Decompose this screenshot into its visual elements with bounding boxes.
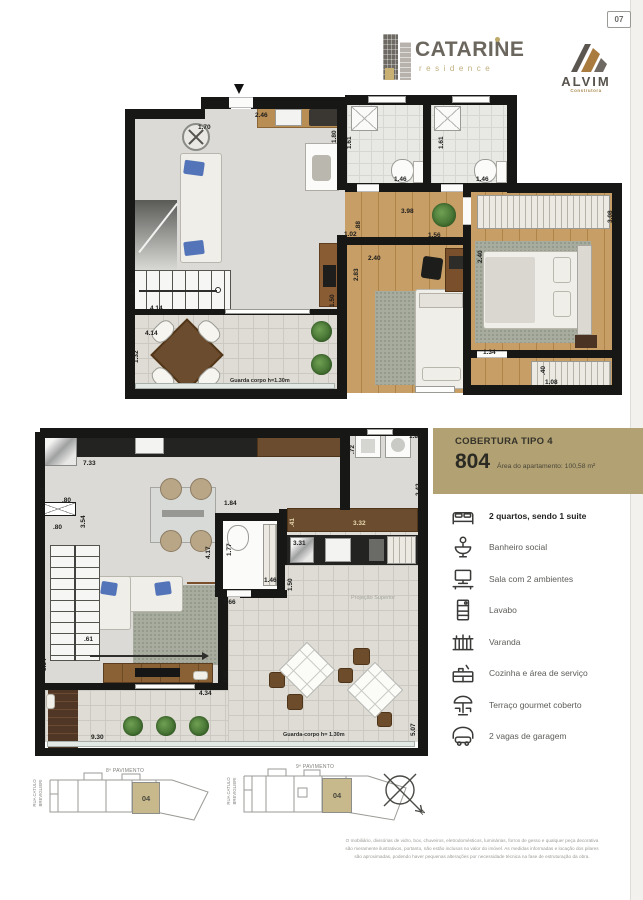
feature-item: Banheiro social <box>450 532 628 564</box>
dimension-label: .80 <box>62 497 71 504</box>
builder-name: ALVIM <box>547 74 625 89</box>
guardrail-glass <box>47 741 415 747</box>
door-gap <box>463 197 471 225</box>
bed-headboard <box>577 245 592 335</box>
dimension-label: 2.40 <box>477 250 484 263</box>
feature-label: 2 quartos, sendo 1 suite <box>489 511 586 521</box>
disclaimer-line: O mobiliário, divisórias de vidro, box, … <box>318 837 626 845</box>
floor-label: 8º PAVIMENTO <box>106 768 144 774</box>
chair <box>312 155 331 181</box>
stair-direction-line <box>90 655 202 657</box>
brand-accent-dot <box>495 37 500 42</box>
feature-label: Cozinha e área de serviço <box>489 668 588 678</box>
fridge <box>43 436 77 466</box>
bath-cabinet <box>496 161 507 183</box>
dimension-label: 3.98 <box>401 208 414 215</box>
street-label: RUA CATULO BREVIGLIERI <box>32 766 43 820</box>
sofa-pillow <box>100 581 118 596</box>
door-gap <box>441 184 463 192</box>
door-gap <box>357 184 379 192</box>
washing-machine-drum <box>391 438 405 452</box>
dimension-label: 2.42 <box>415 483 422 496</box>
building-icon-accent <box>385 68 394 80</box>
bedroom2-rug <box>375 291 417 385</box>
entry-arrow-icon <box>234 84 244 94</box>
dimension-label: 3.31 <box>293 540 306 547</box>
door-gap <box>227 590 251 597</box>
dimension-label: 1.70 <box>198 124 211 131</box>
upper-floor-plan: 2.461.701.801.611.611.461.463.98.881.021… <box>125 95 622 400</box>
dimension-label: .72 <box>349 445 356 454</box>
dimension-label: 3.32 <box>353 520 366 527</box>
dimension-label: 2.46 <box>255 112 268 119</box>
feature-list: 2 quartos, sendo 1 suiteBanheiro socialS… <box>450 500 628 752</box>
unit-number: 804 <box>455 450 490 474</box>
terrace-seat <box>338 668 353 683</box>
bed-blanket <box>485 257 535 323</box>
kitchen-icon <box>450 660 476 686</box>
dimension-label: 4.14 <box>150 305 163 312</box>
sofa-pillow <box>183 240 205 256</box>
dimension-label: 1.66 <box>223 599 236 606</box>
dimension-label: 1.84 <box>224 500 237 507</box>
kitchen-sink <box>275 109 302 126</box>
service-door <box>367 429 393 435</box>
feature-item: Varanda <box>450 626 628 658</box>
dimension-label: 4.17 <box>205 546 212 559</box>
floor-plan-sheet: 07 CATARINE residence ALVIM Construtora <box>0 0 643 900</box>
window <box>452 96 490 103</box>
feature-item: Lavabo <box>450 595 628 627</box>
plant <box>432 203 456 227</box>
feature-item: Terraço gourmet coberto <box>450 689 628 721</box>
dimension-label: .41 <box>289 518 296 527</box>
dimension-label: 2.25 <box>223 670 230 683</box>
bed-pillow <box>553 291 571 317</box>
dimension-label: 1.61 <box>346 136 353 149</box>
unit-area: Área do apartamento: 100,58 m² <box>497 463 595 470</box>
dimension-label: Guarda corpo h=1.30m <box>230 378 290 384</box>
shaft-marker <box>40 502 76 516</box>
gourmet-sink <box>325 538 351 562</box>
unit-info-panel: COBERTURA TIPO 4 804 Área do apartamento… <box>433 428 643 494</box>
terrace-seat <box>287 694 303 710</box>
dimension-label: 1.80 <box>331 130 338 143</box>
garage-icon <box>450 723 476 749</box>
sink-icon <box>450 534 476 560</box>
dimension-label: 3.86 <box>129 282 136 295</box>
dimension-label: Projeção Superior <box>351 595 395 601</box>
dimension-label: 4.14 <box>145 330 158 337</box>
bed-bench <box>422 367 461 381</box>
brand-name: CATARINE <box>415 38 524 62</box>
dimension-label: 2.80 <box>193 671 208 680</box>
unit-highlight: 04 <box>322 778 352 813</box>
nightstand <box>575 335 597 348</box>
toilet-icon <box>450 597 476 623</box>
dimension-label: 1.46 <box>476 176 489 183</box>
dimension-label: 1.02 <box>344 231 357 238</box>
brand-subtitle: residence <box>419 64 494 73</box>
unit-type-title: COBERTURA TIPO 4 <box>455 436 643 447</box>
alvim-mark-icon <box>547 38 625 74</box>
dimension-label: 1.61 <box>438 136 445 149</box>
dimension-label: 1.08 <box>545 379 558 386</box>
shower-box <box>434 106 461 131</box>
table-runner <box>162 510 204 517</box>
dining-chair <box>160 530 182 552</box>
wardrobe <box>477 195 610 229</box>
dimension-label: 1.34 <box>483 349 496 356</box>
dimension-label: 1.82 <box>39 487 46 500</box>
legal-disclaimer: O mobiliário, divisórias de vidro, box, … <box>318 837 626 860</box>
plant <box>123 716 143 736</box>
unit-highlight: 04 <box>132 782 160 814</box>
plant <box>156 716 176 736</box>
dimension-label: 2.83 <box>353 268 360 281</box>
dimension-label: 1.32 <box>46 694 55 709</box>
dimension-label: 4.34 <box>199 690 212 697</box>
alvim-logo: ALVIM Construtora <box>547 38 625 98</box>
plant <box>311 354 332 375</box>
feature-label: Varanda <box>489 637 521 647</box>
dimension-label: 7.33 <box>83 460 96 467</box>
page-number-badge: 07 <box>607 11 631 28</box>
dimension-label: 1.50 <box>287 578 294 591</box>
disclaimer-line: são aproximadas, podendo haver pequenas … <box>318 853 626 861</box>
dimension-label: .40 <box>540 366 547 375</box>
terrace-seat <box>377 712 392 727</box>
dimension-label: 3.08 <box>607 210 614 223</box>
catarine-logo: CATARINE residence <box>383 28 518 90</box>
feature-label: Sala com 2 ambientes <box>489 574 573 584</box>
feature-item: 2 quartos, sendo 1 suite <box>450 500 628 532</box>
window <box>415 386 455 393</box>
decor-object <box>323 265 336 287</box>
desk-chair <box>421 256 444 281</box>
disclaimer-line: são meramente ilustrativos, portanto, nã… <box>318 845 626 853</box>
sliding-door <box>225 309 310 314</box>
sliding-door <box>135 684 195 689</box>
feature-item: Sala com 2 ambientes <box>450 563 628 595</box>
stair-direction-line <box>139 290 217 292</box>
balcony-icon <box>450 629 476 655</box>
plant <box>189 716 209 736</box>
umbrella-icon <box>450 692 476 718</box>
shutter-panel <box>387 536 416 564</box>
dimension-label: 1.32 <box>133 350 140 363</box>
feature-item: 2 vagas de garagem <box>450 721 628 753</box>
feature-item: Cozinha e área de serviço <box>450 658 628 690</box>
dimension-label: 9.30 <box>91 734 104 741</box>
sofa-tv-icon <box>450 566 476 592</box>
bed-pillow <box>553 257 571 283</box>
entry-door-gap <box>229 97 253 108</box>
dimension-label: 1.56 <box>428 232 441 239</box>
feature-label: Lavabo <box>489 605 517 615</box>
dimension-label: 1.77 <box>226 543 233 556</box>
lower-floor-plan: 7.331.82.803.54.801.844.171.771.461.66.7… <box>35 424 428 760</box>
bed-pillow <box>419 293 463 308</box>
dimension-label: 3.54 <box>80 515 87 528</box>
building-icon <box>400 42 411 80</box>
sofa-pillow <box>154 581 172 596</box>
dimension-label: 1.46 <box>394 176 407 183</box>
dimension-label: .88 <box>355 221 362 230</box>
tv <box>135 668 180 677</box>
builder-subtitle: Construtora <box>547 88 625 93</box>
window <box>368 96 406 103</box>
dimension-label: 3.54 <box>41 658 48 671</box>
floor-label: 9º PAVIMENTO <box>296 764 334 770</box>
dimension-label: 1.50 <box>329 294 336 307</box>
dimension-label: .80 <box>53 524 62 531</box>
terrace-seat <box>353 648 370 665</box>
plant <box>311 321 332 342</box>
feature-label: 2 vagas de garagem <box>489 731 567 741</box>
sofa-pillow <box>183 160 205 177</box>
feature-label: Terraço gourmet coberto <box>489 700 582 710</box>
stair-direction-arrow <box>202 652 209 660</box>
dimension-label: .61 <box>84 636 93 643</box>
dining-chair <box>190 478 212 500</box>
dimension-label: 1.80 <box>409 433 422 440</box>
appliance <box>369 539 384 561</box>
stair-rail <box>74 545 76 661</box>
feature-label: Banheiro social <box>489 542 547 552</box>
shower-box <box>351 106 378 131</box>
floor-key-8: RUA CATULO BREVIGLIERI 8º PAVIMENTO 04 <box>18 760 218 826</box>
dimension-label: 2.40 <box>368 255 381 262</box>
laundry-tub-basin <box>361 439 375 453</box>
bed-icon <box>450 503 476 529</box>
dimension-label: Guarda-corpo h= 1.30m <box>283 732 345 738</box>
dining-chair <box>160 478 182 500</box>
north-compass-icon: N <box>376 768 432 824</box>
dimension-label: 5.07 <box>410 723 417 736</box>
street-label: RUA CATULO BREVIGLIERI <box>226 764 237 818</box>
dimension-label: 1.46 <box>264 577 277 584</box>
